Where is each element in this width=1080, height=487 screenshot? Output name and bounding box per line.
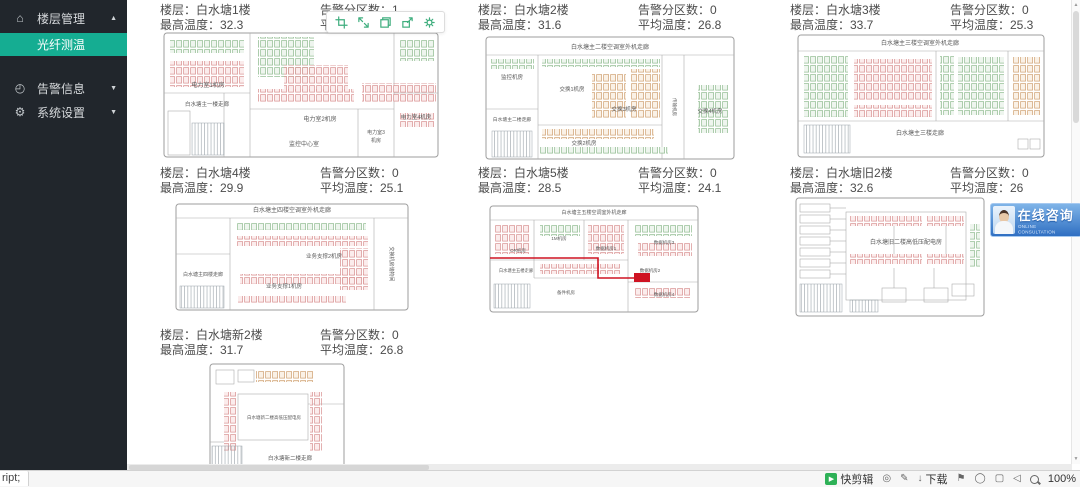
settings-icon[interactable] <box>422 15 437 30</box>
floor-name: 楼层：白水塘5楼 <box>478 166 569 181</box>
alarm-zones: 告警分区数：0 <box>320 166 403 181</box>
scroll-up-arrow[interactable]: ▲ <box>1072 0 1080 10</box>
download-label: 下载 <box>926 471 948 487</box>
consult-subtitle: ONLINE CONSULTATION <box>1018 224 1075 235</box>
max-temp: 最高温度：29.9 <box>160 181 251 196</box>
svg-text:电力室3: 电力室3 <box>367 129 385 136</box>
crop-icon[interactable] <box>334 15 349 30</box>
circle-icon[interactable]: ◯ <box>975 474 986 484</box>
sidebar-item-label: 楼层管理 <box>37 10 85 27</box>
avg-temp: 平均温度：25.1 <box>320 181 403 196</box>
floor-plan[interactable]: 电力室1机房白水塘主一楼走廊电力室2机房监控中心室电力室3机房电力室4机房 <box>162 31 440 159</box>
expand-icon[interactable] <box>356 15 371 30</box>
svg-text:白水塘主一楼走廊: 白水塘主一楼走廊 <box>185 100 230 108</box>
svg-text:监控机房: 监控机房 <box>501 73 524 81</box>
svg-text:OR机房: OR机房 <box>510 247 526 254</box>
svg-text:业务支撑2机房: 业务支撑2机房 <box>306 252 343 260</box>
floor-plan[interactable]: 白水塘主三楼空调室外机走廊白水塘主三楼走廊 <box>796 29 1046 159</box>
svg-text:白水塘主四楼空调室外机走廊: 白水塘主四楼空调室外机走廊 <box>253 206 331 214</box>
alarm-zones: 告警分区数：0 <box>950 3 1033 18</box>
svg-text:机房: 机房 <box>371 137 381 144</box>
chevron-down-icon: ▼ <box>110 85 117 92</box>
svg-text:白水塘新二楼走廊: 白水塘新二楼走廊 <box>268 454 313 462</box>
svg-text:白水塘主三楼空调室外机走廊: 白水塘主三楼空调室外机走廊 <box>881 39 959 47</box>
alarm-zones: 告警分区数：0 <box>638 166 721 181</box>
alarm-zones: 告警分区数：0 <box>638 3 721 18</box>
svg-text:白水塘主二楼空调室外机走廊: 白水塘主二楼空调室外机走廊 <box>571 43 649 51</box>
chevron-down-icon: ▼ <box>110 109 117 116</box>
browser-tools: ▶ 快剪辑 ◎ ✎ ↓ 下载 ⚑ ◯ ▢ ◁ 100% <box>825 471 1076 487</box>
svg-text:交换2机房: 交换2机房 <box>571 139 597 147</box>
alarm-zones: 告警分区数：0 <box>950 166 1029 181</box>
svg-text:白水塘主二楼走廊: 白水塘主二楼走廊 <box>493 116 532 123</box>
sidebar-spacer <box>0 56 127 76</box>
svg-text:电力室1机房: 电力室1机房 <box>191 81 224 89</box>
scroll-down-arrow[interactable]: ▼ <box>1072 454 1080 464</box>
sidebar-item-label: 光纤测温 <box>37 36 85 53</box>
svg-text:数据机房3: 数据机房3 <box>654 239 675 246</box>
quick-edit-label: 快剪辑 <box>840 471 873 487</box>
floor-name: 楼层：白水塘旧2楼 <box>790 166 893 181</box>
svg-text:电力室2机房: 电力室2机房 <box>303 115 336 123</box>
sidebar-item-system-settings[interactable]: ⚙ 系统设置 ▼ <box>0 100 127 124</box>
floor-name: 楼层：白水塘3楼 <box>790 3 881 18</box>
vertical-scroll-thumb[interactable] <box>1073 11 1079 123</box>
svg-text:白水塘旧二楼高低压配电房: 白水塘旧二楼高低压配电房 <box>870 238 942 246</box>
chevron-up-icon: ▲ <box>110 15 117 22</box>
flag-icon[interactable]: ⚑ <box>957 474 966 484</box>
svg-text:白水塘主五楼走廊: 白水塘主五楼走廊 <box>499 267 534 274</box>
svg-text:业务支撑1机房: 业务支撑1机房 <box>266 282 303 290</box>
window-icon[interactable] <box>378 15 393 30</box>
floor-name: 楼层：白水塘1楼 <box>160 3 251 18</box>
consultant-avatar <box>993 206 1015 234</box>
sidebar-item-label: 告警信息 <box>37 80 85 97</box>
svg-text:白水塘主三楼走廊: 白水塘主三楼走廊 <box>896 129 944 137</box>
magnifier-icon[interactable] <box>1030 475 1039 484</box>
svg-text:交换1机房: 交换1机房 <box>559 85 585 93</box>
avg-temp: 平均温度：26 <box>950 181 1029 196</box>
download-icon: ↓ <box>918 474 923 484</box>
floor-plan[interactable]: 白水塘主五楼空调室外机走廊OR机房1M机房数据机房1数据机房3白水塘主五楼走廊数… <box>488 198 700 316</box>
svg-text:数据机房2: 数据机房2 <box>640 267 661 274</box>
consult-title: 在线咨询 <box>1018 205 1080 224</box>
floor-cards-area: 楼层：白水塘1楼 最高温度：32.3 告警分区数：1 平 电力室1机房白水塘主一… <box>127 0 1072 464</box>
floor-card-6: 楼层：白水塘旧2楼 最高温度：32.6 告警分区数：0 平均温度：26 白水塘旧… <box>790 166 1072 328</box>
svg-text:备件机房: 备件机房 <box>557 289 575 296</box>
floor-plan[interactable]: 白水塘新二楼高低压配电房白水塘新二楼走廊 <box>160 362 460 464</box>
floor-card-7: 楼层：白水塘新2楼 最高温度：31.7 告警分区数：0 平均温度：26.8 白水… <box>160 328 450 464</box>
online-consult-badge[interactable]: 在线咨询 ONLINE CONSULTATION <box>990 203 1080 237</box>
svg-text:数据机房4: 数据机房4 <box>654 291 675 298</box>
svg-text:交换3机房: 交换3机房 <box>611 105 637 113</box>
svg-text:1M机房: 1M机房 <box>551 235 567 242</box>
svg-text:白水塘新二楼高低压配电房: 白水塘新二楼高低压配电房 <box>247 414 301 421</box>
max-temp: 最高温度：32.6 <box>790 181 893 196</box>
quick-edit-button[interactable]: ▶ 快剪辑 <box>825 471 873 487</box>
floor-plan[interactable]: 白水塘主四楼空调室外机走廊白水塘主四楼走廊业务支撑1机房业务支撑2机房交换机房储… <box>174 196 410 314</box>
sidebar: ⌂ 楼层管理 ▲ 光纤测温 ◴ 告警信息 ▼ ⚙ 系统设置 ▼ <box>0 0 127 471</box>
svg-text:白水塘主四楼走廊: 白水塘主四楼走廊 <box>183 271 223 278</box>
max-temp: 最高温度：31.7 <box>160 343 263 358</box>
svg-text:交换4机房: 交换4机房 <box>697 107 723 115</box>
sidebar-item-label: 系统设置 <box>37 104 85 121</box>
svg-text:数据机房1: 数据机房1 <box>596 245 617 252</box>
floor-name: 楼层：白水塘4楼 <box>160 166 251 181</box>
status-bar: ript; ▶ 快剪辑 ◎ ✎ ↓ 下载 ⚑ ◯ ▢ ◁ 100% <box>0 470 1080 487</box>
max-temp: 最高温度：28.5 <box>478 181 569 196</box>
floor-name: 楼层：白水塘2楼 <box>478 3 569 18</box>
player-icon: ▶ <box>825 473 837 485</box>
floor-card-3: 楼层：白水塘3楼 最高温度：33.7 告警分区数：0 平均温度：25.3 白水塘… <box>790 3 1072 165</box>
floor-name: 楼层：白水塘新2楼 <box>160 328 263 343</box>
sidebar-item-floor-management[interactable]: ⌂ 楼层管理 ▲ <box>0 6 127 30</box>
sidebar-item-alarm-info[interactable]: ◴ 告警信息 ▼ <box>0 76 127 100</box>
zoom-level[interactable]: 100% <box>1048 473 1076 485</box>
capture-toolbar <box>326 11 445 33</box>
alarm-icon: ◴ <box>13 81 27 95</box>
alarm-zones: 告警分区数：0 <box>320 328 403 343</box>
record-icon[interactable]: ◎ <box>882 474 891 484</box>
share-icon[interactable] <box>400 15 415 30</box>
download-button[interactable]: ↓ 下载 <box>918 471 948 487</box>
svg-text:交换机房储物间: 交换机房储物间 <box>388 246 395 281</box>
floor-card-2: 楼层：白水塘2楼 最高温度：31.6 告警分区数：0 平均温度：26.8 白水塘… <box>478 3 768 165</box>
sidebar-item-fiber-temperature[interactable]: 光纤测温 <box>0 33 127 56</box>
svg-text:监控中心室: 监控中心室 <box>289 140 319 148</box>
floor-plan[interactable]: 白水塘主二楼空调室外机走廊监控机房交换1机房白水塘主二楼走廊交换3机房传输机房交… <box>484 29 736 161</box>
gear-icon: ⚙ <box>13 105 27 119</box>
floor-card-4: 楼层：白水塘4楼 最高温度：29.9 告警分区数：0 平均温度：25.1 白水塘… <box>160 166 450 328</box>
link-status-text: ript; <box>0 471 29 486</box>
speaker-icon[interactable]: ◁ <box>1013 474 1021 484</box>
home-icon: ⌂ <box>13 11 27 25</box>
svg-text:传输机房: 传输机房 <box>671 98 678 116</box>
brush-icon[interactable]: ✎ <box>900 474 908 484</box>
avg-temp: 平均温度：26.8 <box>320 343 403 358</box>
avg-temp: 平均温度：24.1 <box>638 181 721 196</box>
svg-text:白水塘主五楼空调室外机走廊: 白水塘主五楼空调室外机走廊 <box>561 209 626 216</box>
window-icon[interactable]: ▢ <box>995 474 1004 484</box>
floor-card-5: 楼层：白水塘5楼 最高温度：28.5 告警分区数：0 平均温度：24.1 白水塘… <box>478 166 768 328</box>
floor-plan[interactable]: 白水塘旧二楼高低压配电房 <box>794 196 986 318</box>
svg-text:电力室4机房: 电力室4机房 <box>401 113 432 121</box>
